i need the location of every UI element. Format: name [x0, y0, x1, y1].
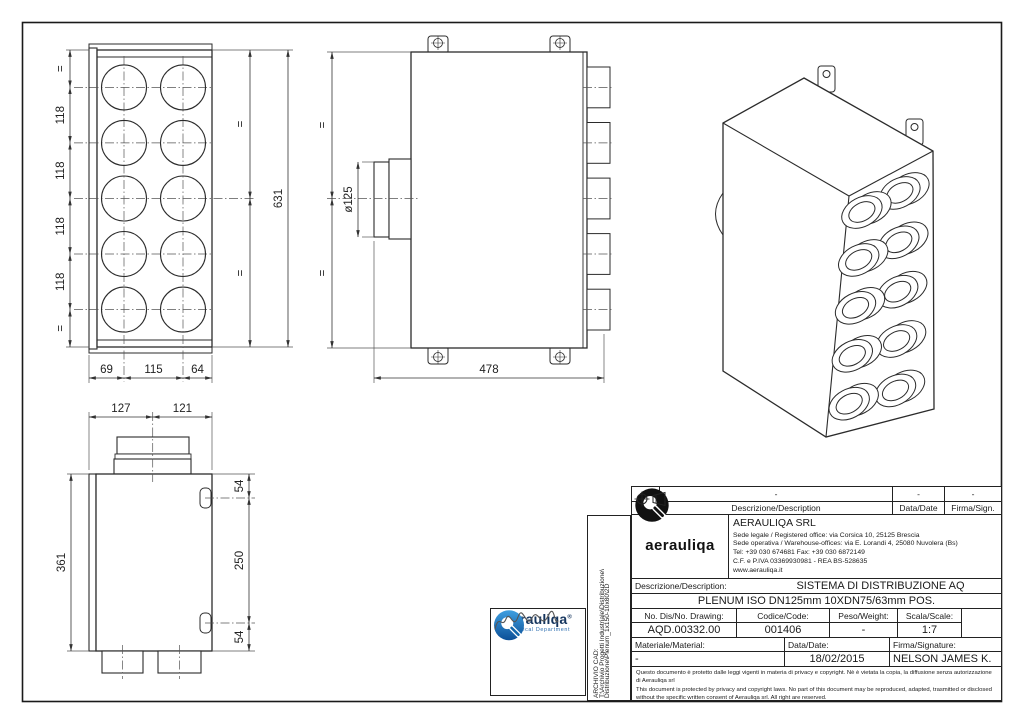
description-row-2: PLENUM ISO DN125mm 10XDN75/63mm POS. — [632, 594, 1001, 609]
dim-front-eq-top: = — [55, 65, 67, 72]
dim-side-121: 121 — [173, 403, 192, 415]
code-label: Codice/Code: — [737, 609, 830, 622]
rev-date-value: - — [893, 487, 945, 501]
material-value-row: - 18/02/2015 NELSON JAMES K. — [632, 652, 1001, 667]
description-line2: PLENUM ISO DN125mm 10XDN75/63mm POS. — [632, 594, 1001, 608]
archive-strip: ARCHIVIO CAD: T:\Archivio Progetti Indus… — [587, 515, 631, 701]
legal-notice: Questo documento è protetto dalle leggi … — [632, 667, 1001, 702]
dim-front-631: 631 — [273, 189, 285, 208]
dim-front-118-3: 118 — [55, 217, 67, 235]
top-view: = = ø125 478 — [317, 36, 614, 383]
dim-front-eq-bottom: = — [55, 325, 67, 332]
company-logo: aerauliqa — [632, 515, 729, 578]
dim-side-54-top: 54 — [234, 479, 246, 492]
front-view: = 118 118 118 118 = = = 631 69 115 64 — [55, 44, 293, 383]
weight-value: - — [830, 623, 898, 637]
drawing-sheet: = 118 118 118 118 = = = 631 69 115 64 — [0, 0, 1024, 724]
archive-line-3: Distribuzione\Plenum_1x150-10x80\2D — [602, 518, 615, 698]
description-row-1: Descrizione/Description: SISTEMA DI DIST… — [632, 579, 1001, 594]
revision-values-row: - - - - — [632, 487, 1001, 502]
drawing-number-label: No. Dis/No. Drawing: — [632, 609, 737, 622]
dim-side-54-bottom: 54 — [234, 630, 246, 643]
dim-side-250: 250 — [234, 551, 246, 570]
rev-sign-value: - — [945, 487, 1001, 501]
dim-front-eq-right1: = — [235, 120, 247, 127]
dim-top-eq1: = — [317, 121, 329, 128]
drawing-number-value: AQD.00332.00 — [632, 623, 737, 637]
material-header-row: Materiale/Material: Data/Date: Firma/Sig… — [632, 638, 1001, 652]
dim-front-115: 115 — [144, 364, 162, 376]
dim-side-361: 361 — [56, 553, 68, 572]
dim-side-127: 127 — [111, 403, 130, 415]
signature-label: Firma/Signature: — [890, 638, 1001, 651]
rev-sign-label: Firma/Sign. — [945, 502, 1001, 514]
company-website: www.aerauliqa.it — [733, 567, 997, 576]
rev-date-label: Data/Date — [893, 502, 945, 514]
dim-top-478: 478 — [479, 364, 498, 376]
scale-value: 1:7 — [898, 623, 961, 637]
material-value: - — [632, 652, 785, 666]
side-view: 127 121 361 54 250 54 — [56, 403, 255, 679]
projection-symbol-cell — [961, 609, 1001, 637]
technical-department-stamp: aerauliqa® Technical Department — [490, 608, 586, 696]
dim-front-118-1: 118 — [55, 106, 67, 124]
isometric-view — [716, 66, 935, 437]
dim-front-64: 64 — [191, 364, 204, 376]
legal-line-en: This document is protected by privacy an… — [636, 686, 997, 703]
title-block: - - - - Rev. Descrizione/Description Dat… — [631, 486, 1002, 701]
company-info: AERAULIQA SRL Sede legale / Registered o… — [729, 515, 1001, 578]
dim-front-eq-right2: = — [235, 269, 247, 276]
company-phone: Tel: +39 030 674681 Fax: +39 030 6872149 — [733, 549, 997, 558]
weight-label: Peso/Weight: — [830, 609, 898, 622]
rev-desc-value: - — [660, 487, 893, 501]
dim-front-118-2: 118 — [55, 162, 67, 180]
description-line1: SISTEMA DI DISTRIBUZIONE AQ — [760, 579, 1001, 593]
dim-front-118-4: 118 — [55, 273, 67, 291]
scale-label: Scala/Scale: — [898, 609, 961, 622]
company-vat: C.F. e P.IVA 03369930981 - REA BS-528635 — [733, 558, 997, 567]
dim-top-diameter: ø125 — [343, 186, 355, 212]
registered-mark: ® — [567, 614, 572, 620]
company-name: AERAULIQA SRL — [733, 517, 997, 531]
archive-path-text: ARCHIVIO CAD: T:\Archivio Progetti Indus… — [591, 518, 631, 698]
aerauliqa-logo-black-icon — [632, 515, 672, 527]
signature-value: NELSON JAMES K. — [890, 652, 1001, 666]
company-address-1: Sede legale / Registered office: via Cor… — [733, 532, 997, 541]
material-label: Materiale/Material: — [632, 638, 785, 651]
rev-desc-label: Descrizione/Description — [660, 502, 893, 514]
code-value: 001406 — [737, 623, 830, 637]
drawing-data-table: No. Dis/No. Drawing: Codice/Code: Peso/W… — [632, 609, 1001, 638]
signature-scribble — [491, 609, 561, 633]
dim-top-eq2: = — [317, 269, 329, 276]
date-label: Data/Date: — [785, 638, 890, 651]
revision-header-row: Rev. Descrizione/Description Data/Date F… — [632, 502, 1001, 515]
dim-front-69: 69 — [100, 364, 113, 376]
description-label: Descrizione/Description: — [632, 579, 760, 593]
company-row: aerauliqa AERAULIQA SRL Sede legale / Re… — [632, 515, 1001, 579]
legal-line-it: Questo documento è protetto dalle leggi … — [636, 669, 997, 686]
company-address-2: Sede operativa / Warehouse-offices: via … — [733, 540, 997, 549]
company-logo-wordmark: aerauliqa — [645, 537, 714, 554]
date-value: 18/02/2015 — [785, 652, 890, 666]
